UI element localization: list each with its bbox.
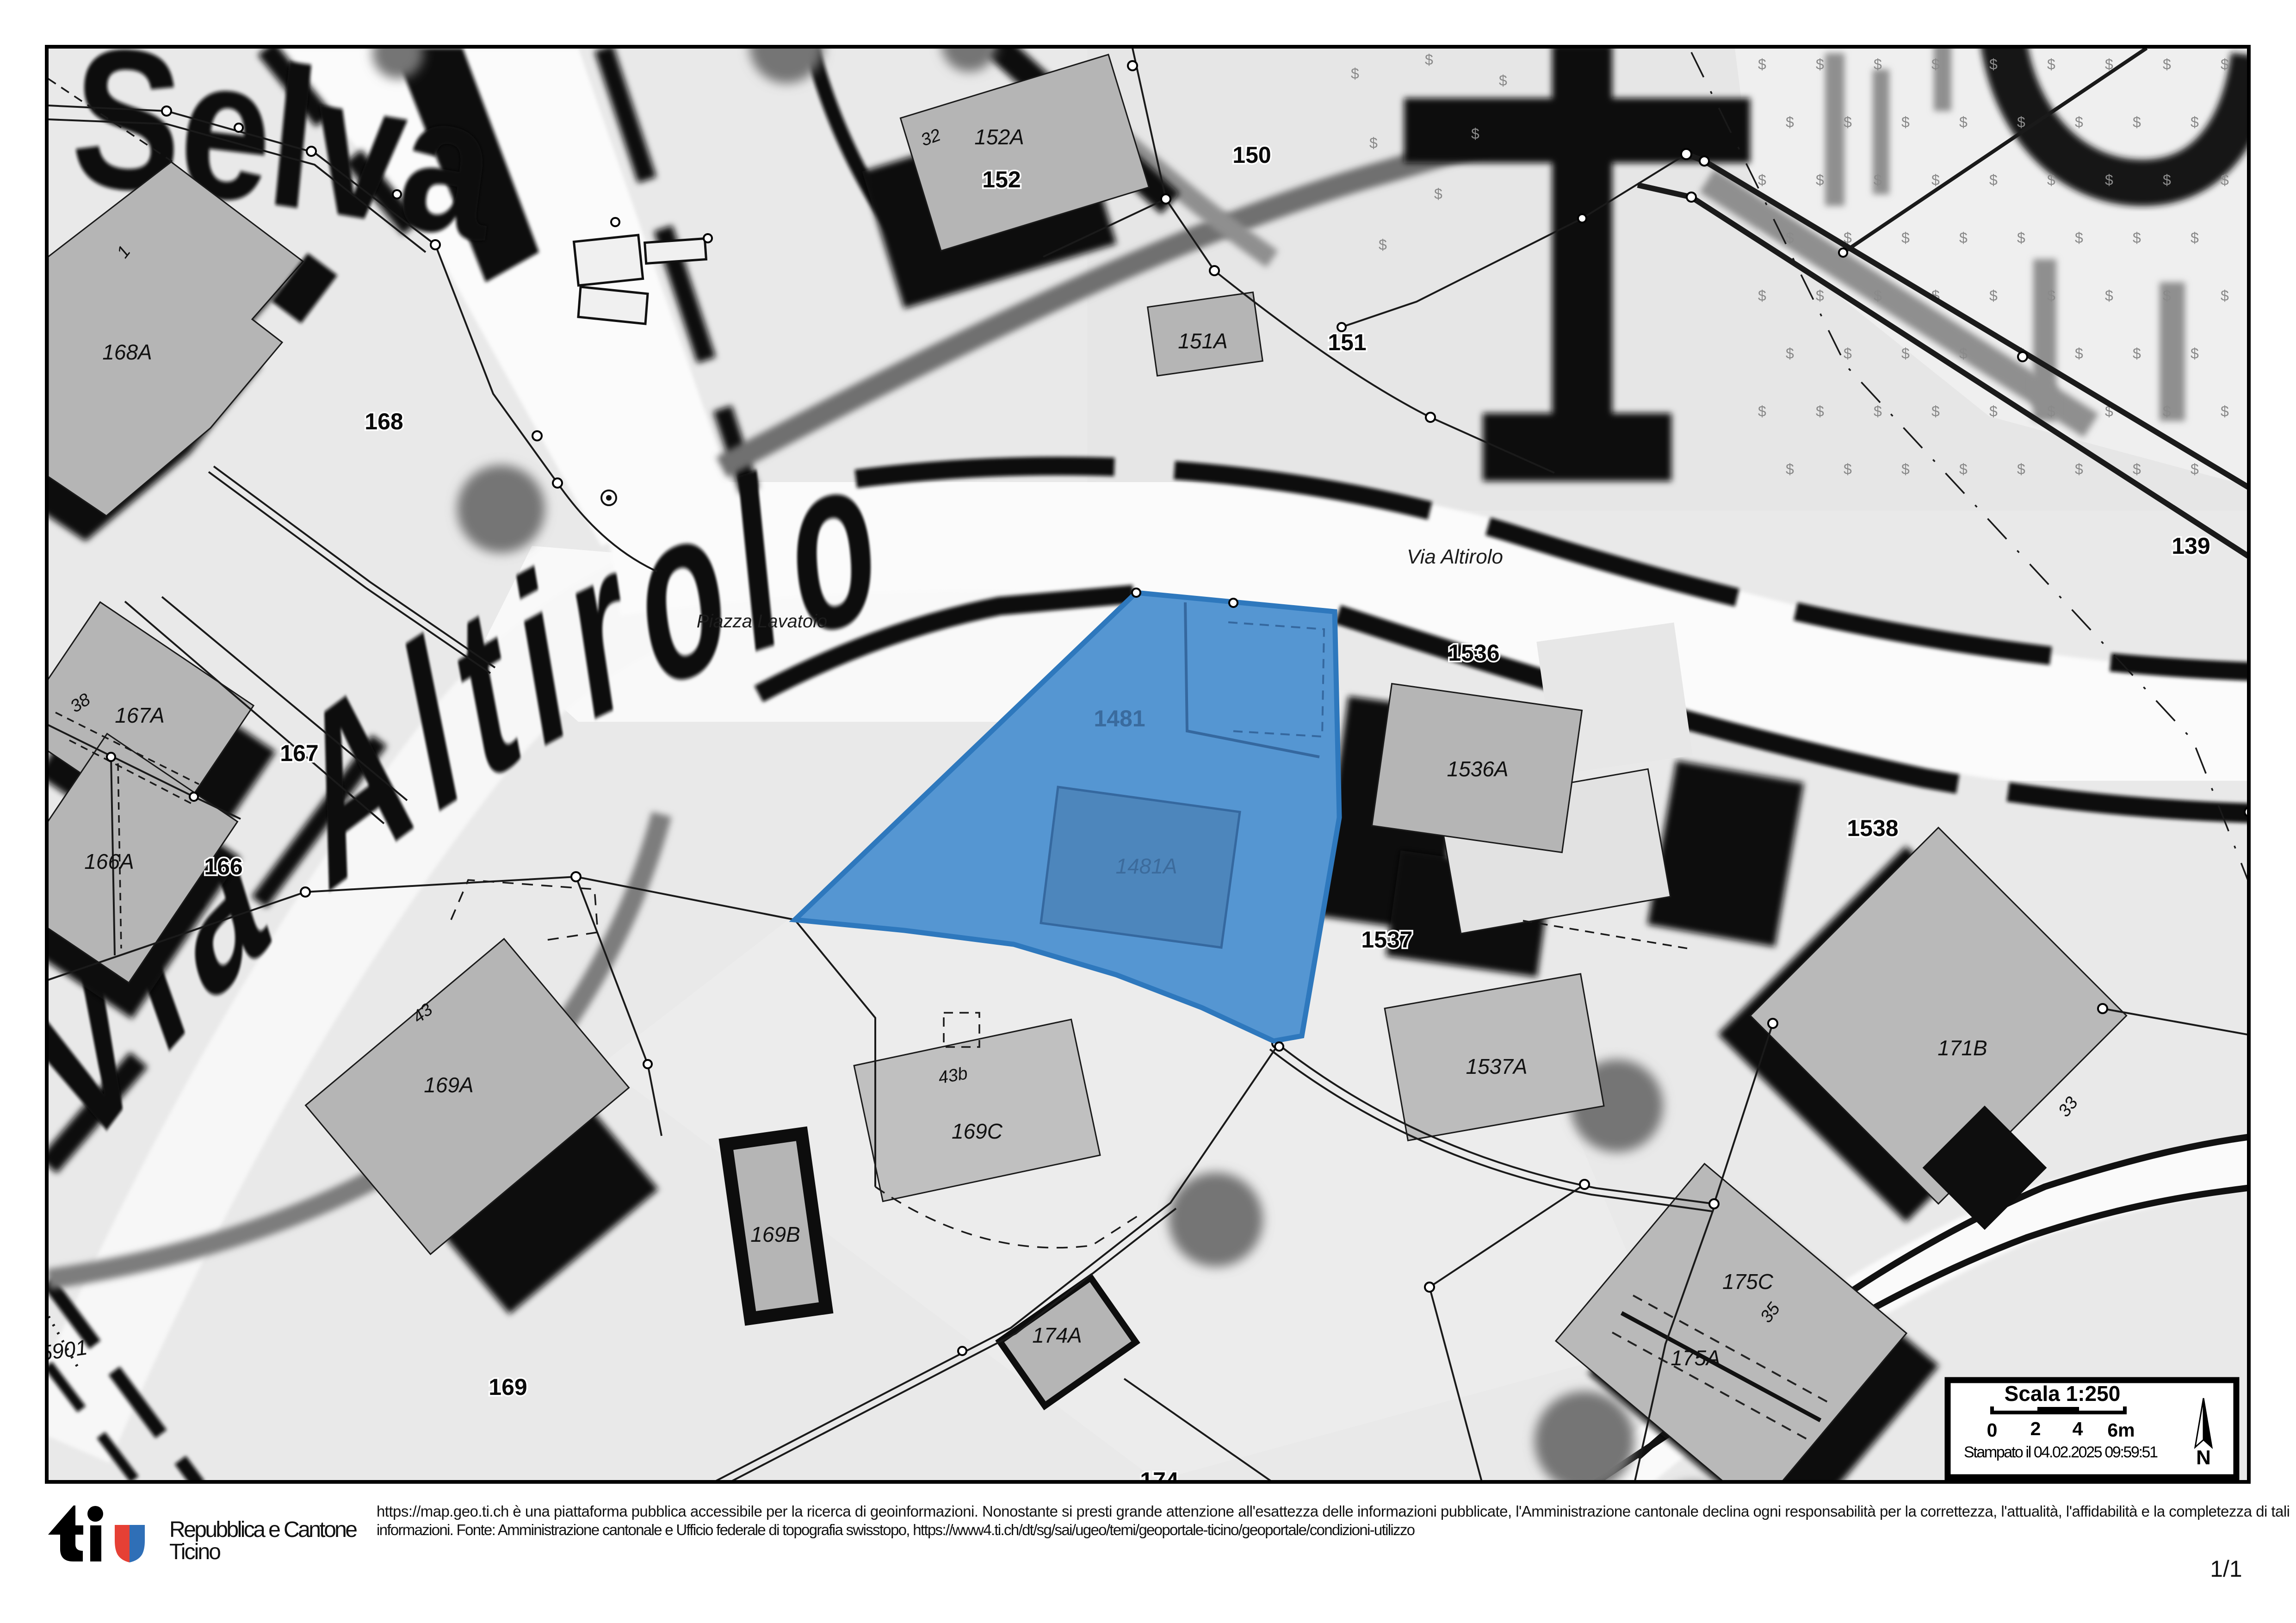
svg-text:$: $ bbox=[1959, 461, 1968, 477]
svg-text:$: $ bbox=[2133, 114, 2141, 130]
svg-text:$: $ bbox=[2017, 229, 2025, 246]
svg-text:$: $ bbox=[2221, 172, 2229, 188]
svg-text:$: $ bbox=[2221, 56, 2229, 73]
svg-text:$: $ bbox=[1786, 345, 1794, 362]
svg-text:$: $ bbox=[1379, 236, 1387, 253]
svg-text:$: $ bbox=[1874, 172, 1882, 188]
svg-text:2: 2 bbox=[2030, 1418, 2041, 1439]
svg-text:$: $ bbox=[2047, 287, 2055, 304]
svg-text:166: 166 bbox=[204, 854, 242, 880]
svg-text:$: $ bbox=[2075, 461, 2083, 477]
svg-text:$: $ bbox=[2163, 172, 2171, 188]
svg-text:$: $ bbox=[1901, 461, 1910, 477]
svg-text:$: $ bbox=[1786, 461, 1794, 477]
svg-text:171B: 171B bbox=[1937, 1036, 1987, 1060]
svg-text:$: $ bbox=[2221, 403, 2229, 420]
svg-text:1481: 1481 bbox=[1094, 706, 1145, 731]
svg-text:$: $ bbox=[1786, 114, 1794, 130]
svg-text:$: $ bbox=[2047, 172, 2055, 188]
svg-text:$: $ bbox=[1425, 51, 1433, 68]
svg-text:$: $ bbox=[2191, 229, 2199, 246]
svg-text:$: $ bbox=[2133, 461, 2141, 477]
svg-text:1481A: 1481A bbox=[1115, 854, 1177, 878]
svg-text:1537: 1537 bbox=[1361, 927, 1412, 953]
svg-text:0: 0 bbox=[1987, 1419, 1998, 1441]
svg-text:Stampato il 04.02.2025 09:59:5: Stampato il 04.02.2025 09:59:51 bbox=[1964, 1443, 2158, 1461]
svg-text:$: $ bbox=[1989, 56, 1998, 73]
svg-text:N: N bbox=[2196, 1446, 2211, 1469]
svg-text:1/1: 1/1 bbox=[2210, 1556, 2242, 1582]
svg-text:169B: 169B bbox=[750, 1222, 800, 1246]
svg-text:$: $ bbox=[1959, 229, 1968, 246]
svg-text:$: $ bbox=[2191, 345, 2199, 362]
svg-text:$: $ bbox=[1844, 345, 1852, 362]
svg-text:$: $ bbox=[1816, 56, 1824, 73]
svg-text:6m: 6m bbox=[2107, 1419, 2135, 1441]
svg-text:169: 169 bbox=[489, 1374, 527, 1400]
svg-text:$: $ bbox=[2075, 229, 2083, 246]
svg-text:175C: 175C bbox=[1722, 1270, 1774, 1294]
svg-text:$: $ bbox=[2047, 56, 2055, 73]
svg-text:$: $ bbox=[2047, 403, 2055, 420]
svg-text:$: $ bbox=[2105, 172, 2113, 188]
svg-text:150: 150 bbox=[1232, 142, 1271, 168]
svg-text:174A: 174A bbox=[1032, 1323, 1082, 1347]
svg-text:$: $ bbox=[1816, 403, 1824, 420]
svg-text:$: $ bbox=[2133, 229, 2141, 246]
svg-text:$: $ bbox=[2221, 287, 2229, 304]
svg-text:167A: 167A bbox=[115, 703, 164, 727]
svg-text:$: $ bbox=[1844, 461, 1852, 477]
svg-text:$: $ bbox=[2075, 114, 2083, 130]
svg-text:$: $ bbox=[1844, 114, 1852, 130]
svg-text:$: $ bbox=[1931, 172, 1940, 188]
svg-text:Scala 1:250: Scala 1:250 bbox=[2005, 1381, 2121, 1406]
svg-text:167: 167 bbox=[280, 740, 318, 766]
svg-text:$: $ bbox=[1874, 287, 1882, 304]
svg-text:$: $ bbox=[1901, 114, 1910, 130]
svg-text:$: $ bbox=[1758, 287, 1766, 304]
svg-text:$: $ bbox=[2075, 345, 2083, 362]
svg-text:151A: 151A bbox=[1178, 329, 1227, 353]
svg-text:$: $ bbox=[1989, 403, 1998, 420]
svg-text:$: $ bbox=[2133, 345, 2141, 362]
svg-text:$: $ bbox=[1931, 403, 1940, 420]
svg-text:$: $ bbox=[1351, 65, 1359, 82]
svg-text:Via Altirolo: Via Altirolo bbox=[1407, 545, 1503, 568]
svg-text:Repubblica e Cantone: Repubblica e Cantone bbox=[169, 1518, 358, 1542]
svg-text:$: $ bbox=[1816, 287, 1824, 304]
svg-text:$: $ bbox=[2191, 461, 2199, 477]
svg-text:152A: 152A bbox=[974, 125, 1024, 149]
svg-text:168A: 168A bbox=[102, 340, 152, 364]
svg-text:$: $ bbox=[1758, 403, 1766, 420]
svg-text:169A: 169A bbox=[424, 1073, 473, 1097]
svg-text:$: $ bbox=[1471, 125, 1479, 142]
svg-text:168: 168 bbox=[365, 409, 403, 434]
svg-text:$: $ bbox=[2163, 403, 2171, 420]
svg-text:$: $ bbox=[1786, 229, 1794, 246]
svg-text:$: $ bbox=[1901, 229, 1910, 246]
svg-text:$: $ bbox=[2105, 56, 2113, 73]
svg-text:139: 139 bbox=[2172, 533, 2210, 559]
svg-text:1536A: 1536A bbox=[1447, 757, 1508, 781]
svg-text:$: $ bbox=[1816, 172, 1824, 188]
svg-text:1537A: 1537A bbox=[1466, 1054, 1527, 1078]
svg-text:$: $ bbox=[1758, 172, 1766, 188]
svg-text:4: 4 bbox=[2073, 1418, 2083, 1439]
svg-text:$: $ bbox=[2191, 114, 2199, 130]
svg-text:175A: 175A bbox=[1671, 1346, 1720, 1370]
svg-text:1536: 1536 bbox=[1448, 640, 1499, 666]
svg-text:$: $ bbox=[1901, 345, 1910, 362]
svg-text:$: $ bbox=[1874, 403, 1882, 420]
svg-text:$: $ bbox=[1499, 72, 1507, 89]
svg-text:$: $ bbox=[1989, 287, 1998, 304]
svg-text:166A: 166A bbox=[84, 849, 134, 873]
svg-text:Piazza Lavatoio: Piazza Lavatoio bbox=[697, 611, 827, 632]
svg-text:1538: 1538 bbox=[1847, 815, 1898, 841]
svg-text:$: $ bbox=[1369, 135, 1378, 151]
svg-text:$: $ bbox=[2017, 461, 2025, 477]
svg-text:informazioni. Fonte: Amministr: informazioni. Fonte: Amministrazione can… bbox=[377, 1521, 1415, 1538]
svg-text:$: $ bbox=[1931, 56, 1940, 73]
svg-text:151: 151 bbox=[1328, 329, 1366, 355]
svg-text:$: $ bbox=[1959, 114, 1968, 130]
svg-text:$: $ bbox=[1874, 56, 1882, 73]
svg-text:$: $ bbox=[1758, 56, 1766, 73]
svg-text:$: $ bbox=[2163, 56, 2171, 73]
svg-text:$: $ bbox=[2163, 287, 2171, 304]
svg-text:$: $ bbox=[1434, 186, 1442, 202]
svg-text:$: $ bbox=[2017, 114, 2025, 130]
svg-text:$: $ bbox=[2105, 287, 2113, 304]
svg-text:152: 152 bbox=[982, 167, 1021, 192]
svg-text:$: $ bbox=[1989, 172, 1998, 188]
svg-text:Ticino: Ticino bbox=[169, 1540, 221, 1564]
svg-text:169C: 169C bbox=[952, 1119, 1003, 1143]
svg-text:$: $ bbox=[1959, 345, 1968, 362]
svg-text:https://map.geo.ti.ch è una pi: https://map.geo.ti.ch è una piattaforma … bbox=[377, 1503, 2290, 1520]
